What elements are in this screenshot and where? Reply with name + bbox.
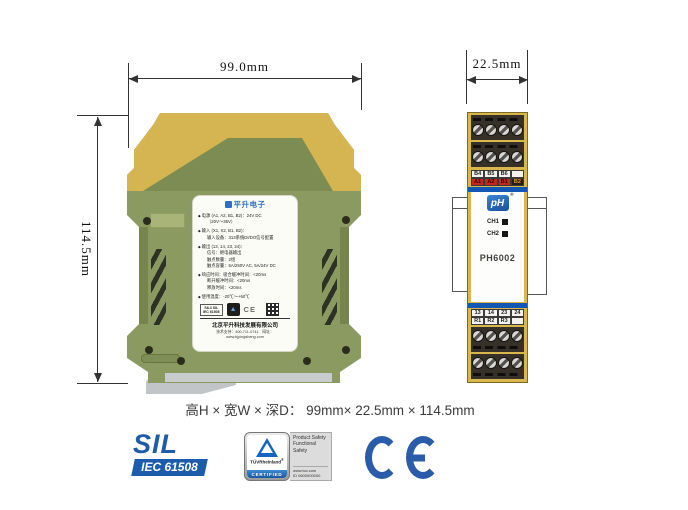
terminal-block	[471, 142, 524, 167]
screw-icon	[498, 124, 510, 136]
screw-terminal-row	[471, 357, 524, 369]
channel-indicator-1: CH1	[471, 219, 524, 225]
sil-badge: SIL IEC 61508	[133, 431, 223, 476]
tuv-seal: TÜVRheinland® CERTIFIED	[244, 432, 290, 481]
config-port	[150, 213, 185, 228]
label-cert-row: SIL3 SIL IEC 61508 ▲ CE	[200, 303, 292, 316]
sil-title: SIL	[133, 431, 223, 458]
screw-icon	[511, 357, 523, 369]
din-rail	[165, 373, 332, 382]
ce-mark: CE	[365, 436, 440, 479]
wire-slot-row	[473, 145, 522, 148]
brand-logo-icon	[225, 201, 232, 208]
screw-icon	[498, 151, 510, 163]
front-face-panel: pH ® CH1 CH2 PH6002	[471, 192, 524, 302]
screw-icon	[498, 357, 510, 369]
dim-height-ext-top	[77, 115, 128, 116]
dimensions-caption: 高H × 宽W × 深D： 99mm× 22.5mm × 114.5mm	[140, 399, 520, 419]
tuv-scope: Product Safety Functional Safety www.tuv…	[290, 432, 332, 481]
arrow-up-icon	[94, 117, 102, 126]
accent-bar-bottom	[468, 303, 527, 308]
dim-height-label: 114.5mm	[78, 221, 94, 277]
dim-width-line	[128, 78, 361, 79]
screw-icon	[472, 330, 484, 342]
tuv-certified-band: CERTIFIED	[247, 470, 287, 478]
screw-icon	[472, 357, 484, 369]
screw-icon	[342, 346, 350, 354]
screw-terminal-row	[471, 151, 524, 163]
dim-width-ext-right	[361, 63, 362, 110]
screw-icon	[485, 357, 497, 369]
spec-response: 响应时间：吸合缓冲时间：<20ms 断开缓冲时间：<20ms 释放时间：<20m…	[198, 272, 292, 291]
screw-icon	[177, 357, 185, 365]
led-indicator	[502, 219, 508, 225]
terminal-block	[471, 115, 524, 140]
arrow-right-icon	[352, 75, 361, 83]
qr-code	[266, 303, 279, 316]
screw-icon	[498, 330, 510, 342]
arrow-left-icon	[129, 75, 138, 83]
screw-icon	[143, 217, 151, 225]
terminal-id-row-relay: R1 R2 R3	[471, 317, 524, 325]
terminal-id-row-top: B4 B5 B6	[471, 170, 524, 178]
tuv-mini-icon: ▲	[227, 303, 240, 316]
dim-depth-label: 22.5mm	[452, 56, 542, 72]
screw-icon	[342, 216, 350, 224]
screw-icon	[511, 151, 523, 163]
led-indicator	[502, 231, 508, 237]
terminal-id-row-power: A1 A2 B1 B2	[471, 178, 524, 186]
vent-slots-left	[151, 249, 166, 325]
tuv-badge: TÜVRheinland® CERTIFIED Product Safety F…	[244, 432, 332, 481]
arrow-down-icon	[94, 373, 102, 382]
terminal-id-row-output: 13 14 23 24	[471, 309, 524, 317]
mounting-tab-right	[527, 197, 547, 295]
channel-indicator-2: CH2	[471, 231, 524, 237]
terminal-block	[471, 354, 524, 379]
registered-mark: ®	[510, 192, 513, 197]
ce-letter-e-icon	[406, 436, 440, 479]
screw-icon	[303, 357, 311, 365]
terminal-block	[471, 327, 524, 352]
ph-logo: pH ®	[487, 195, 509, 211]
tuv-triangle-icon	[256, 438, 278, 457]
dim-width-label: 99.0mm	[128, 59, 361, 75]
dim-height-ext-bottom	[77, 383, 128, 384]
screw-icon	[145, 346, 153, 354]
brand-row: 平升电子	[198, 199, 292, 210]
spec-temperature: 使用温度：-20℃～+60℃	[198, 294, 292, 300]
screw-icon	[472, 151, 484, 163]
sil-mini-badge: SIL3 SIL IEC 61508	[200, 304, 223, 316]
screw-terminal-row	[471, 330, 524, 342]
model-number: PH6002	[471, 253, 524, 263]
wire-slot-row	[473, 346, 522, 349]
spec-input: 输入 (X1, X2, B1, B2)： 输入设备：313系统DI/DO信号配置	[198, 228, 292, 241]
ce-text: CE	[365, 436, 366, 437]
screw-icon	[472, 124, 484, 136]
spec-output: 输出 (13, 14, 23, 24)： 信号：继电器输出 触点数量：2组 触点…	[198, 244, 292, 270]
product-label: 平升电子 电源 (A1, A2, B1, B2)：24V DC （20V～35V…	[192, 195, 298, 352]
spec-power: 电源 (A1, A2, B1, B2)：24V DC （20V～35V）	[198, 213, 292, 226]
diagram-canvas: { "dimensions": { "width": "99.0mm", "de…	[0, 0, 688, 510]
arrow-right-icon	[519, 76, 528, 84]
company-name: 北京平升科技发展有限公司	[198, 321, 292, 329]
contact-line: 技术支持：400-711-0741 网址：www.bjpingsheng.com	[198, 330, 292, 339]
latch-slot	[141, 354, 180, 363]
side-edge-left	[139, 227, 148, 324]
screw-icon	[511, 124, 523, 136]
module-front-view: B4 B5 B6 A1 A2 B1 B2 pH ® CH1 CH2 PH6002…	[467, 112, 528, 383]
side-edge-right	[340, 227, 349, 324]
ce-mini-mark: CE	[244, 305, 256, 314]
wire-slot-row	[473, 373, 522, 376]
screw-terminal-row	[471, 124, 524, 136]
arrow-left-icon	[467, 76, 476, 84]
label-divider	[200, 318, 290, 319]
vent-slots-right	[322, 249, 337, 325]
screw-icon	[485, 330, 497, 342]
screw-icon	[485, 124, 497, 136]
ce-letter-c-icon	[365, 436, 399, 479]
sil-standard: IEC 61508	[131, 459, 207, 476]
brand-name: 平升电子	[234, 199, 266, 210]
tuv-brand: TÜVRheinland®	[250, 458, 284, 465]
dim-height-line	[97, 117, 98, 382]
tuv-site: www.tuv.com ID 0600000000	[293, 466, 328, 478]
wire-slot-row	[473, 118, 522, 121]
screw-icon	[511, 330, 523, 342]
screw-icon	[485, 151, 497, 163]
